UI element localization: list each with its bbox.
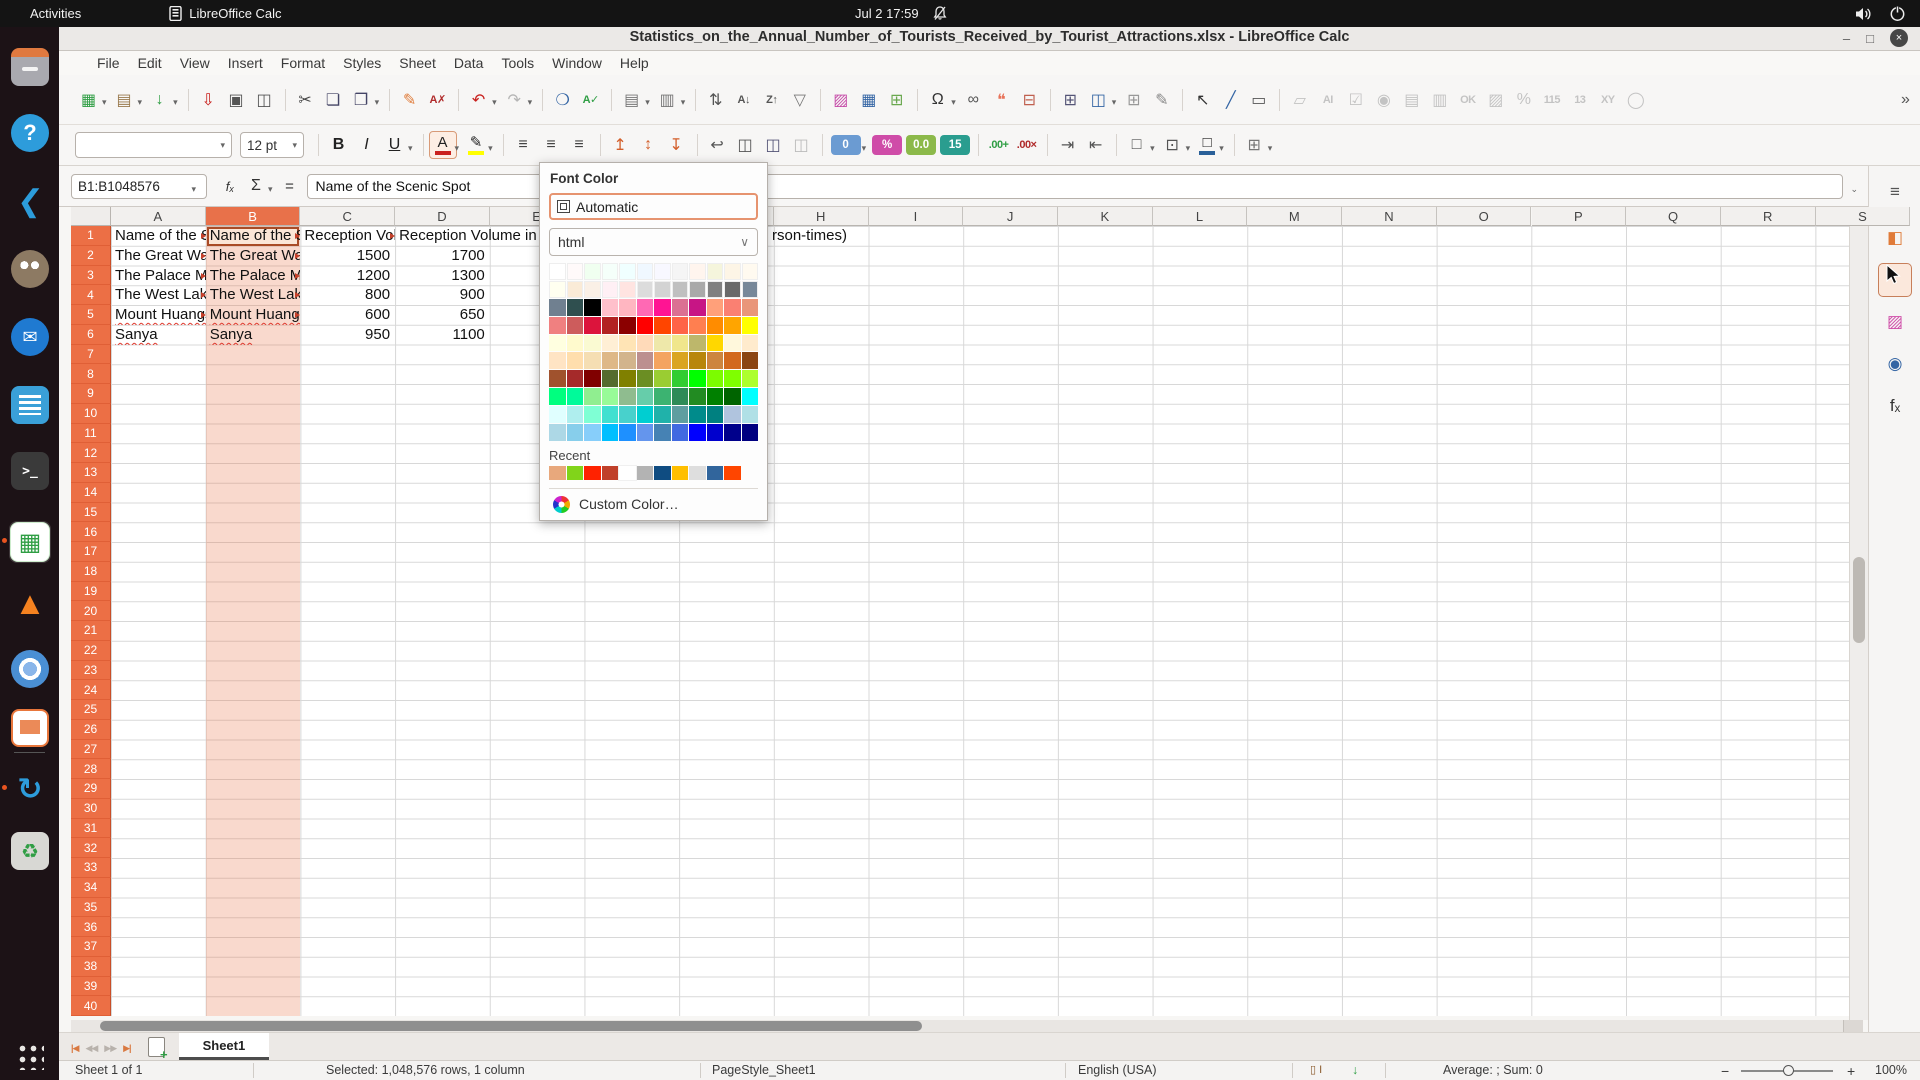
- swatch-FFF0F5[interactable]: [602, 281, 619, 298]
- row-header-26[interactable]: 26: [71, 720, 111, 740]
- vertical-scrollbar-thumb[interactable]: [1853, 557, 1865, 643]
- recent-swatch-FF4500[interactable]: [724, 466, 741, 480]
- power-icon[interactable]: [1889, 5, 1906, 22]
- cell-C4[interactable]: 800: [301, 285, 395, 305]
- swatch-556B2F[interactable]: [602, 370, 619, 387]
- dock-item-help[interactable]: ?: [9, 112, 51, 154]
- clear-formatting-icon[interactable]: A✗: [424, 87, 451, 113]
- open-icon[interactable]: ▤: [111, 87, 138, 113]
- swatch-00008B[interactable]: [724, 424, 741, 441]
- language-status[interactable]: English (USA): [1078, 1063, 1157, 1077]
- zoom-level[interactable]: 100%: [1875, 1063, 1907, 1077]
- swatch-FFDAB9[interactable]: [637, 335, 654, 352]
- swatch-228B22[interactable]: [689, 388, 706, 405]
- swatch-FFFAF0[interactable]: [742, 263, 759, 280]
- print-preview-icon[interactable]: ◫: [251, 87, 278, 113]
- row-header-15[interactable]: 15: [71, 503, 111, 523]
- highlight-color-icon[interactable]: ✎: [463, 132, 489, 158]
- pivot-table-icon[interactable]: ⊞: [883, 87, 910, 113]
- row-header-12[interactable]: 12: [71, 443, 111, 463]
- swatch-FFF8DC[interactable]: [724, 335, 741, 352]
- aggregate-status[interactable]: Average: ; Sum: 0: [1443, 1063, 1543, 1077]
- dock-item-trash[interactable]: ♻: [9, 830, 51, 872]
- cell-A4[interactable]: The West Lake: [112, 285, 206, 305]
- dock-item-vscode[interactable]: ❮: [9, 180, 51, 222]
- swatch-66CDAA[interactable]: [637, 388, 654, 405]
- insert-chart-icon[interactable]: ▦: [855, 87, 882, 113]
- spelling-icon[interactable]: A✓: [577, 87, 604, 113]
- swatch-778899[interactable]: [742, 281, 759, 298]
- hyperlink-icon[interactable]: ∞: [960, 87, 987, 113]
- dock-item-updater[interactable]: ↻: [9, 768, 51, 810]
- swatch-ADFF2F[interactable]: [742, 370, 759, 387]
- dock-item-writer[interactable]: [9, 384, 51, 426]
- swatch-A0522D[interactable]: [549, 370, 566, 387]
- cell-C3[interactable]: 1200: [301, 266, 395, 286]
- swatch-DC143C[interactable]: [584, 317, 601, 334]
- swatch-E9967A[interactable]: [742, 299, 759, 316]
- swatch-008B8B[interactable]: [689, 406, 706, 423]
- swatch-0000CD[interactable]: [707, 424, 724, 441]
- headers-footers-icon[interactable]: ⊟: [1016, 87, 1043, 113]
- cell-C2[interactable]: 1500: [301, 246, 395, 266]
- font-name-combobox[interactable]: ▾: [75, 132, 232, 158]
- swatch-808080[interactable]: [707, 281, 724, 298]
- swatch-8B0000[interactable]: [619, 317, 636, 334]
- conditional-formatting-icon[interactable]: ⊞: [1241, 132, 1268, 158]
- show-draw-functions-icon[interactable]: ✎: [1148, 87, 1175, 113]
- align-right-icon[interactable]: ≡: [566, 132, 593, 158]
- format-decimal-icon[interactable]: 0.0: [906, 135, 936, 155]
- maximize-button[interactable]: □: [1866, 31, 1874, 46]
- swatch-BDB76B[interactable]: [689, 335, 706, 352]
- swatch-FFA07A[interactable]: [707, 299, 724, 316]
- swatch-F0E68C[interactable]: [672, 335, 689, 352]
- border-style-icon[interactable]: ⊡: [1159, 132, 1186, 158]
- cell-D5[interactable]: 650: [396, 305, 490, 325]
- row-header-18[interactable]: 18: [71, 562, 111, 582]
- swatch-F0FFF0[interactable]: [584, 263, 601, 280]
- format-number-icon[interactable]: 0: [831, 135, 861, 155]
- menu-insert[interactable]: Insert: [219, 53, 272, 73]
- swatch-FF6347[interactable]: [672, 317, 689, 334]
- previous-sheet-button[interactable]: ◀◀: [85, 1043, 97, 1053]
- swatch-FFD700[interactable]: [707, 335, 724, 352]
- swatch-4169E1[interactable]: [672, 424, 689, 441]
- swatch-A52A2A[interactable]: [567, 370, 584, 387]
- swatch-FDF5E6[interactable]: [724, 263, 741, 280]
- swatch-C0C0C0[interactable]: [672, 281, 689, 298]
- recent-swatch-0F4C81[interactable]: [654, 466, 671, 480]
- row-header-39[interactable]: 39: [71, 977, 111, 997]
- swatch-98FB98[interactable]: [602, 388, 619, 405]
- merge-and-center-icon[interactable]: ◫: [760, 132, 787, 158]
- delete-decimal-place-icon[interactable]: .00×: [1013, 132, 1040, 158]
- column-header-R[interactable]: R: [1721, 207, 1816, 226]
- row-header-31[interactable]: 31: [71, 819, 111, 839]
- zoom-slider[interactable]: [1741, 1070, 1833, 1072]
- sidebar-tab-sidebar-settings[interactable]: ≡: [1879, 176, 1911, 208]
- column-header-K[interactable]: K: [1058, 207, 1153, 226]
- dock-item-calc[interactable]: ▦: [9, 521, 51, 563]
- swatch-7CFC00[interactable]: [707, 370, 724, 387]
- zoom-slider-knob[interactable]: [1783, 1065, 1794, 1076]
- swatch-00FFFF[interactable]: [742, 388, 759, 405]
- swatch-FFB6C1[interactable]: [619, 299, 636, 316]
- swatch-696969[interactable]: [724, 281, 741, 298]
- swatch-000080[interactable]: [742, 424, 759, 441]
- next-sheet-button[interactable]: ▶▶: [104, 1043, 116, 1053]
- swatch-0000FF[interactable]: [689, 424, 706, 441]
- swatch-708090[interactable]: [549, 299, 566, 316]
- cell-D2[interactable]: 1700: [396, 246, 490, 266]
- row-header-34[interactable]: 34: [71, 878, 111, 898]
- font-name-dropdown[interactable]: ▾: [220, 140, 225, 151]
- row-header-30[interactable]: 30: [71, 799, 111, 819]
- align-top-icon[interactable]: ↥: [607, 132, 634, 158]
- borders-icon[interactable]: □: [1123, 132, 1150, 158]
- row-dropdown[interactable]: ▾: [645, 97, 650, 108]
- print-icon[interactable]: ▣: [223, 87, 250, 113]
- swatch-00BFFF[interactable]: [602, 424, 619, 441]
- swatch-9ACD32[interactable]: [654, 370, 671, 387]
- row-header-20[interactable]: 20: [71, 601, 111, 621]
- row-header-13[interactable]: 13: [71, 463, 111, 483]
- menu-tools[interactable]: Tools: [492, 53, 543, 73]
- new-dropdown[interactable]: ▾: [102, 97, 107, 108]
- horizontal-scrollbar[interactable]: [71, 1020, 1862, 1032]
- swatch-FF69B4[interactable]: [637, 299, 654, 316]
- paste-icon[interactable]: ❐: [348, 87, 375, 113]
- swatch-6495ED[interactable]: [637, 424, 654, 441]
- swatch-000000[interactable]: [584, 299, 601, 316]
- border-style-dropdown[interactable]: ▾: [1186, 143, 1191, 154]
- row-header-25[interactable]: 25: [71, 700, 111, 720]
- swatch-800000[interactable]: [584, 370, 601, 387]
- row-header-8[interactable]: 8: [71, 364, 111, 384]
- swatch-00FF00[interactable]: [689, 370, 706, 387]
- swatch-2F4F4F[interactable]: [567, 299, 584, 316]
- cell-B6[interactable]: Sanya: [207, 325, 301, 345]
- swatch-808000[interactable]: [619, 370, 636, 387]
- split-window-dropdown[interactable]: ▾: [1112, 97, 1117, 108]
- new-icon[interactable]: ▦: [75, 87, 102, 113]
- column-header-S[interactable]: S: [1816, 207, 1911, 226]
- recent-swatch-DEDEDE[interactable]: [689, 466, 706, 480]
- row-header-4[interactable]: 4: [71, 285, 111, 305]
- swatch-FFFF00[interactable]: [742, 317, 759, 334]
- row-header-22[interactable]: 22: [71, 641, 111, 661]
- export-pdf-icon[interactable]: ⇩: [195, 87, 222, 113]
- selection-mode-icon[interactable]: ▯ I: [1310, 1063, 1322, 1076]
- comment-icon[interactable]: ❝: [988, 87, 1015, 113]
- swatch-F5F5DC[interactable]: [707, 263, 724, 280]
- formula-input[interactable]: Name of the Scenic Spot: [307, 174, 1844, 199]
- copy-icon[interactable]: ❏: [320, 87, 347, 113]
- row-header-23[interactable]: 23: [71, 661, 111, 681]
- swatch-006400[interactable]: [724, 388, 741, 405]
- column-header-J[interactable]: J: [963, 207, 1058, 226]
- swatch-48D1CC[interactable]: [619, 406, 636, 423]
- clock-menu[interactable]: Jul 2 17:59: [855, 6, 947, 21]
- menu-styles[interactable]: Styles: [334, 53, 390, 73]
- menu-help[interactable]: Help: [611, 53, 658, 73]
- conditional-formatting-dropdown[interactable]: ▾: [1268, 143, 1273, 154]
- swatch-F0FFFF[interactable]: [619, 263, 636, 280]
- swatch-F8F8FF[interactable]: [654, 263, 671, 280]
- insert-text-box-icon[interactable]: ▭: [1245, 87, 1272, 113]
- swatch-00FA9A[interactable]: [567, 388, 584, 405]
- sum-dropdown[interactable]: ▾: [268, 184, 273, 195]
- row-header-14[interactable]: 14: [71, 483, 111, 503]
- minimize-button[interactable]: –: [1843, 31, 1850, 46]
- row-header-2[interactable]: 2: [71, 246, 111, 266]
- formula-button[interactable]: =: [277, 174, 303, 199]
- swatch-F08080[interactable]: [549, 317, 566, 334]
- underline-icon[interactable]: U: [381, 132, 408, 158]
- bold-icon[interactable]: B: [325, 132, 352, 158]
- swatch-B8860B[interactable]: [689, 352, 706, 369]
- add-decimal-place-icon[interactable]: .00+: [985, 132, 1012, 158]
- row-header-1[interactable]: 1: [71, 226, 111, 246]
- swatch-87CEFA[interactable]: [584, 424, 601, 441]
- undo-icon[interactable]: ↶: [465, 87, 492, 113]
- recent-swatch-C0402A[interactable]: [602, 466, 619, 480]
- volume-icon[interactable]: [1855, 6, 1873, 22]
- swatch-DB7093[interactable]: [672, 299, 689, 316]
- swatch-4682B4[interactable]: [654, 424, 671, 441]
- swatch-EEE8AA[interactable]: [654, 335, 671, 352]
- sort-icon[interactable]: ⇅: [702, 87, 729, 113]
- swatch-F5DEB3[interactable]: [584, 352, 601, 369]
- name-box-dropdown[interactable]: ▾: [191, 184, 196, 195]
- dock-item-vlc[interactable]: ▲: [9, 582, 51, 624]
- cell-B5[interactable]: Mount Huangshan: [207, 305, 301, 325]
- dock-item-gimp[interactable]: [9, 248, 51, 290]
- border-color-icon[interactable]: □: [1194, 132, 1220, 158]
- swatch-CD5C5C[interactable]: [567, 317, 584, 334]
- last-sheet-button[interactable]: ▶|: [123, 1043, 130, 1053]
- cell-C5[interactable]: 600: [301, 305, 395, 325]
- swatch-F4A460[interactable]: [654, 352, 671, 369]
- recent-swatch-FF2200[interactable]: [584, 466, 601, 480]
- border-color-dropdown[interactable]: ▾: [1219, 143, 1224, 154]
- sum-button[interactable]: Σ: [243, 174, 269, 199]
- row-header-32[interactable]: 32: [71, 838, 111, 858]
- swatch-FF0000[interactable]: [637, 317, 654, 334]
- swatch-FFFFF0[interactable]: [549, 281, 566, 298]
- center-vertically-icon[interactable]: ↕: [635, 132, 662, 158]
- swatch-FFFFE0[interactable]: [549, 335, 566, 352]
- swatch-FFE4B5[interactable]: [619, 335, 636, 352]
- dock-item-terminal[interactable]: >_: [9, 450, 51, 492]
- menu-sheet[interactable]: Sheet: [390, 53, 445, 73]
- row-header-28[interactable]: 28: [71, 759, 111, 779]
- document-modified-icon[interactable]: ↓: [1352, 1063, 1358, 1077]
- borders-dropdown[interactable]: ▾: [1150, 143, 1155, 154]
- swatch-2E8B57[interactable]: [672, 388, 689, 405]
- font-color-icon[interactable]: A: [430, 132, 456, 158]
- row-header-10[interactable]: 10: [71, 404, 111, 424]
- align-bottom-icon[interactable]: ↧: [663, 132, 690, 158]
- cell-C1[interactable]: Reception Volume in 2016(10,000 person-t…: [301, 226, 395, 246]
- swatch-00FF7F[interactable]: [549, 388, 566, 405]
- row-header-6[interactable]: 6: [71, 325, 111, 345]
- cell-B3[interactable]: The Palace Museum: [207, 266, 301, 286]
- row-header-11[interactable]: 11: [71, 424, 111, 444]
- column-dropdown[interactable]: ▾: [681, 97, 686, 108]
- row-header-7[interactable]: 7: [71, 345, 111, 365]
- menu-edit[interactable]: Edit: [129, 53, 171, 73]
- swatch-87CEEB[interactable]: [567, 424, 584, 441]
- autofilter-icon[interactable]: ▽: [786, 87, 813, 113]
- activities-button[interactable]: Activities: [30, 6, 81, 21]
- cut-icon[interactable]: ✂: [292, 87, 319, 113]
- swatch-1E90FF[interactable]: [619, 424, 636, 441]
- swatch-6B8E23[interactable]: [637, 370, 654, 387]
- swatch-FFE4C4[interactable]: [549, 352, 566, 369]
- swatch-32CD32[interactable]: [672, 370, 689, 387]
- undo-dropdown[interactable]: ▾: [492, 97, 497, 108]
- swatch-FFE4E1[interactable]: [619, 281, 636, 298]
- format-percent-icon[interactable]: %: [872, 135, 902, 155]
- split-handle[interactable]: [1843, 1020, 1863, 1032]
- swatch-FFFACD[interactable]: [567, 335, 584, 352]
- swatch-7FFFD4[interactable]: [584, 406, 601, 423]
- cell-A3[interactable]: The Palace Museum: [112, 266, 206, 286]
- sidebar-tab-gallery[interactable]: ▨: [1879, 306, 1911, 338]
- swatch-FFFAFA[interactable]: [567, 263, 584, 280]
- menu-view[interactable]: View: [171, 53, 219, 73]
- cell-A5[interactable]: Mount Huangshan: [112, 305, 206, 325]
- horizontal-scrollbar-thumb[interactable]: [100, 1021, 922, 1031]
- swatch-AFEEEE[interactable]: [567, 406, 584, 423]
- cell-A2[interactable]: The Great Wall: [112, 246, 206, 266]
- cell-A6[interactable]: Sanya: [112, 325, 206, 345]
- column-header-I[interactable]: I: [869, 207, 964, 226]
- swatch-DEB887[interactable]: [602, 352, 619, 369]
- swatch-FA8072[interactable]: [724, 299, 741, 316]
- page-style-status[interactable]: PageStyle_Sheet1: [712, 1063, 816, 1077]
- font-size-dropdown[interactable]: ▾: [292, 140, 297, 151]
- custom-color-button[interactable]: Custom Color…: [549, 488, 758, 513]
- swatch-DAA520[interactable]: [672, 352, 689, 369]
- swatch-3CB371[interactable]: [654, 388, 671, 405]
- format-date-icon[interactable]: 15: [940, 135, 970, 155]
- swatch-FFC0CB[interactable]: [602, 299, 619, 316]
- column-header-C[interactable]: C: [300, 207, 395, 226]
- swatch-FF4500[interactable]: [654, 317, 671, 334]
- dock-item-files[interactable]: [9, 46, 51, 88]
- swatch-FFEBCD[interactable]: [742, 335, 759, 352]
- dock-item-impress[interactable]: [9, 707, 51, 749]
- swatch-FFEFD5[interactable]: [602, 335, 619, 352]
- swatch-5F9EA0[interactable]: [672, 406, 689, 423]
- first-sheet-button[interactable]: |◀: [71, 1043, 78, 1053]
- column-header-M[interactable]: M: [1247, 207, 1342, 226]
- cell-D6[interactable]: 1100: [396, 325, 490, 345]
- swatch-DCDCDC[interactable]: [637, 281, 654, 298]
- swatch-90EE90[interactable]: [584, 388, 601, 405]
- find-replace-icon[interactable]: ❍: [549, 87, 576, 113]
- palette-select[interactable]: html ∨: [549, 228, 758, 256]
- zoom-in-button[interactable]: +: [1847, 1063, 1855, 1079]
- swatch-FAF0E6[interactable]: [584, 281, 601, 298]
- swatch-FFFFFF[interactable]: [549, 263, 566, 280]
- row-header-5[interactable]: 5: [71, 305, 111, 325]
- swatch-ADD8E6[interactable]: [549, 424, 566, 441]
- column-header-N[interactable]: N: [1342, 207, 1437, 226]
- sort-ascending-icon[interactable]: A↓: [730, 87, 757, 113]
- swatch-B22222[interactable]: [602, 317, 619, 334]
- row-header-29[interactable]: 29: [71, 779, 111, 799]
- swatch-00CED1[interactable]: [637, 406, 654, 423]
- save-dropdown[interactable]: ▾: [173, 97, 178, 108]
- cell-D1[interactable]: Reception Volume in 2017(10,000 person-t…: [396, 226, 539, 246]
- insert-line-icon[interactable]: ╱: [1217, 87, 1244, 113]
- swatch-FFF5EE[interactable]: [689, 263, 706, 280]
- show-grid-icon[interactable]: ⊞: [1120, 87, 1147, 113]
- close-button[interactable]: ×: [1890, 29, 1908, 47]
- swatch-7FFF00[interactable]: [724, 370, 741, 387]
- swatch-CD853F[interactable]: [707, 352, 724, 369]
- swatch-F0F8FF[interactable]: [637, 263, 654, 280]
- select-icon[interactable]: ↖: [1189, 87, 1216, 113]
- swatch-FAEBD7[interactable]: [567, 281, 584, 298]
- swatch-B0E0E6[interactable]: [742, 406, 759, 423]
- freeze-panes-icon[interactable]: ⊞: [1057, 87, 1084, 113]
- row-header-16[interactable]: 16: [71, 522, 111, 542]
- recent-swatch-FFBF00[interactable]: [672, 466, 689, 480]
- vertical-scrollbar[interactable]: [1849, 207, 1868, 1020]
- column-header-H[interactable]: H: [774, 207, 869, 226]
- wrap-text-icon[interactable]: ↩: [704, 132, 731, 158]
- row-header-36[interactable]: 36: [71, 917, 111, 937]
- cell-B1[interactable]: Name of the Scenic Spot: [207, 226, 301, 246]
- zoom-out-button[interactable]: −: [1721, 1063, 1729, 1079]
- row-icon[interactable]: ▤: [618, 87, 645, 113]
- swatch-FFA500[interactable]: [724, 317, 741, 334]
- automatic-color-button[interactable]: Automatic: [549, 193, 758, 220]
- sidebar-tab-functions[interactable]: fₓ: [1879, 390, 1911, 422]
- column-header-Q[interactable]: Q: [1626, 207, 1721, 226]
- swatch-E0FFFF[interactable]: [549, 406, 566, 423]
- toolbar-overflow-icon[interactable]: »: [1892, 87, 1919, 113]
- align-left-icon[interactable]: ≡: [510, 132, 537, 158]
- function-wizard-button[interactable]: fₓ: [217, 174, 243, 199]
- swatch-F5F5F5[interactable]: [672, 263, 689, 280]
- menu-file[interactable]: File: [88, 53, 129, 73]
- swatch-D3D3D3[interactable]: [654, 281, 671, 298]
- swatch-F5FFFA[interactable]: [602, 263, 619, 280]
- sort-descending-icon[interactable]: Z↑: [758, 87, 785, 113]
- swatch-008080[interactable]: [707, 406, 724, 423]
- swatch-FF7F50[interactable]: [689, 317, 706, 334]
- menu-data[interactable]: Data: [445, 53, 493, 73]
- merge-cells-icon[interactable]: ◫: [732, 132, 759, 158]
- special-character-icon[interactable]: Ω: [924, 87, 951, 113]
- swatch-008000[interactable]: [707, 388, 724, 405]
- column-header-L[interactable]: L: [1153, 207, 1248, 226]
- menu-window[interactable]: Window: [543, 53, 611, 73]
- row-header-17[interactable]: 17: [71, 542, 111, 562]
- cell-C6[interactable]: 950: [301, 325, 395, 345]
- open-dropdown[interactable]: ▾: [138, 97, 143, 108]
- sidebar-tab-navigator[interactable]: ◉: [1879, 348, 1911, 380]
- highlight-color-dropdown[interactable]: ▾: [488, 143, 493, 154]
- column-header-A[interactable]: A: [111, 207, 206, 226]
- cell-grid[interactable]: [111, 226, 1849, 1016]
